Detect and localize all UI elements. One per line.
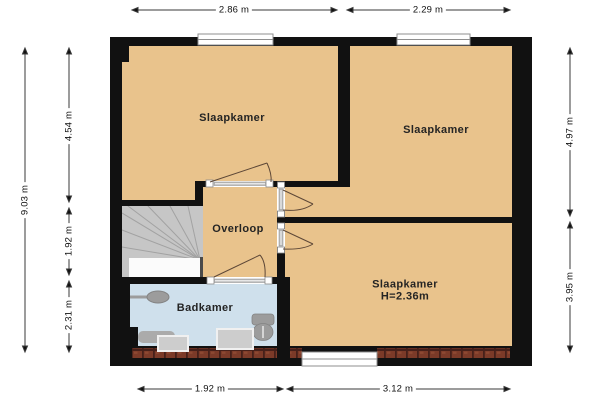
- room-label-bedroom-top-right: Slaapkamer: [403, 124, 469, 136]
- dim-label-right-bottom: 3.95 m: [565, 269, 576, 305]
- stair-landing: [129, 258, 203, 277]
- room-label-bedroom-top-left: Slaapkamer: [199, 112, 265, 124]
- appliance-symbol-left: [158, 336, 188, 351]
- dim-label-bottom-left: 1.92 m: [192, 384, 228, 395]
- window-top-left: [198, 34, 273, 45]
- wall-notch-top-left: [110, 37, 129, 62]
- wall-right: [512, 37, 532, 366]
- dim-label-top-right: 2.29 m: [410, 5, 446, 16]
- dim-label-right-top: 4.97 m: [565, 114, 576, 150]
- floorplan-drawing: [0, 0, 600, 400]
- floorplan-canvas: Slaapkamer Slaapkamer Overloop Badkamer …: [0, 0, 600, 400]
- dim-label-left-middle: 1.92 m: [64, 223, 75, 259]
- room-label-landing: Overloop: [212, 223, 264, 235]
- dim-label-left-bottom: 2.31 m: [64, 297, 75, 333]
- dim-label-left-total: 9.03 m: [20, 182, 31, 218]
- wall-jog: [195, 181, 203, 206]
- toilet-symbol: [252, 314, 274, 341]
- wall-notch-bottom-left: [110, 327, 138, 366]
- dim-label-left-top: 4.54 m: [64, 108, 75, 144]
- dim-label-top-left: 2.86 m: [216, 5, 252, 16]
- stair-stringer: [200, 257, 203, 277]
- room-label-text: Slaapkamer: [372, 280, 438, 292]
- window-top-right: [397, 34, 470, 45]
- appliance-symbol-right: [217, 329, 253, 349]
- wall-between-top-bedrooms: [338, 46, 350, 187]
- room-height-note: H=2.36m: [372, 291, 438, 303]
- room-label-bathroom: Badkamer: [177, 302, 233, 314]
- wall-bedroom-br-left: [277, 277, 290, 348]
- sink-symbol: [147, 291, 169, 303]
- room-label-bedroom-bottom-right: Slaapkamer H=2.36m: [372, 280, 438, 303]
- wall-nook-top: [281, 181, 350, 187]
- window-bottom: [302, 352, 377, 366]
- wall-bedroom-tl-bottom: [122, 200, 203, 206]
- dim-label-bottom-right: 3.12 m: [380, 384, 416, 395]
- wall-between-right-bedrooms: [277, 217, 512, 223]
- staircase: [122, 206, 203, 277]
